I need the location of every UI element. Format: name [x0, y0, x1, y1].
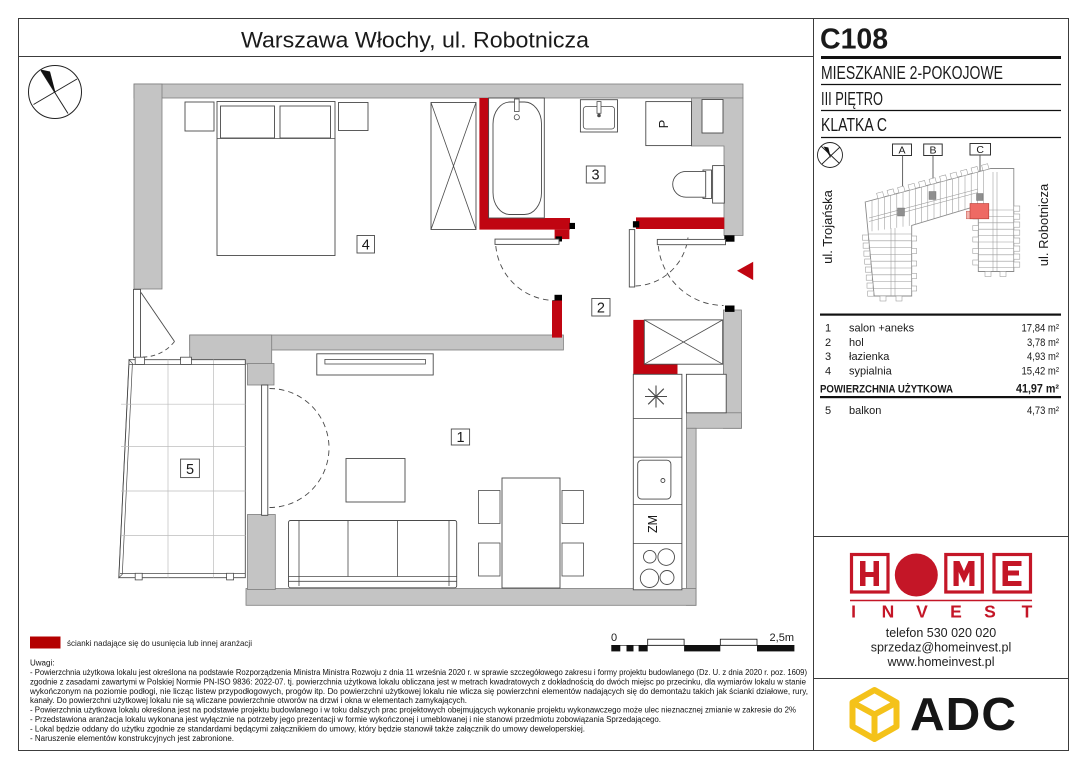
svg-text:15,42 m²: 15,42 m² [1022, 366, 1060, 378]
svg-text:4,93 m²: 4,93 m² [1027, 351, 1059, 363]
svg-text:ADC: ADC [910, 688, 1017, 740]
svg-text:balkon: balkon [849, 405, 881, 417]
svg-text:4: 4 [362, 238, 370, 254]
svg-text:KLATKA C: KLATKA C [821, 115, 887, 135]
svg-text:hol: hol [849, 337, 864, 349]
svg-text:A: A [898, 145, 905, 157]
svg-text:- Lokal będzie oddany do użytk: - Lokal będzie oddany do użytku zgodnie … [30, 724, 585, 733]
svg-text:E: E [950, 602, 962, 622]
svg-text:C108: C108 [820, 24, 888, 56]
svg-text:- Przedstawiona aranżacja loka: - Przedstawiona aranżacja lokalu wykonan… [30, 715, 661, 724]
svg-text:ul. Robotnicza: ul. Robotnicza [1036, 183, 1051, 266]
svg-text:C: C [976, 144, 984, 156]
svg-text:sprzedaz@homeinvest.pl: sprzedaz@homeinvest.pl [871, 641, 1012, 655]
svg-text:salon +aneks: salon +aneks [849, 323, 915, 335]
svg-text:1: 1 [456, 430, 464, 446]
svg-text:V: V [916, 602, 928, 622]
svg-text:ZM: ZM [646, 515, 660, 533]
svg-text:telefon 530 020 020: telefon 530 020 020 [886, 626, 997, 640]
svg-text:Warszawa Włochy, ul. Robotnicz: Warszawa Włochy, ul. Robotnicza [241, 28, 590, 53]
svg-text:łazienka: łazienka [849, 351, 890, 363]
svg-text:41,97 m²: 41,97 m² [1016, 384, 1059, 396]
svg-text:III PIĘTRO: III PIĘTRO [821, 89, 883, 109]
svg-text:sypialnia: sypialnia [849, 366, 893, 378]
svg-text:S: S [984, 602, 996, 622]
svg-text:17,84 m²: 17,84 m² [1022, 323, 1060, 335]
svg-text:MIESZKANIE 2-POKOJOWE: MIESZKANIE 2-POKOJOWE [821, 63, 1003, 83]
svg-text:T: T [1022, 602, 1033, 622]
svg-text:- Naruszenie elementów konstru: - Naruszenie elementów konstrukcyjnych j… [30, 734, 234, 743]
svg-text:2: 2 [825, 337, 831, 349]
svg-text:- Powierzchnia użytkowa lokalu: - Powierzchnia użytkowa lokalu jest okre… [30, 668, 807, 677]
svg-text:www.homeinvest.pl: www.homeinvest.pl [887, 655, 995, 669]
svg-text:kanały. Do powierzchni użytkow: kanały. Do powierzchni użytkowej lokalu … [30, 696, 467, 705]
svg-text:B: B [929, 145, 936, 157]
svg-text:POWIERZCHNIA UŻYTKOWA: POWIERZCHNIA UŻYTKOWA [820, 383, 953, 396]
svg-text:P: P [656, 120, 671, 129]
svg-text:3: 3 [592, 168, 600, 184]
svg-text:4,73 m²: 4,73 m² [1027, 405, 1059, 417]
svg-text:3,78 m²: 3,78 m² [1027, 337, 1059, 349]
svg-text:N: N [882, 602, 895, 622]
svg-text:2: 2 [597, 301, 605, 317]
svg-text:ścianki nadające się do usunię: ścianki nadające się do usunięcia lub in… [67, 638, 252, 648]
svg-text:wykończonym na poziomie podłog: wykończonym na poziomie podłogi, nie lic… [29, 687, 808, 696]
svg-text:- Powierzchnia użytkowa lokalu: - Powierzchnia użytkowa lokalu określona… [30, 706, 796, 715]
svg-text:ul. Trojańska: ul. Trojańska [820, 189, 835, 263]
svg-text:5: 5 [825, 405, 831, 417]
svg-text:zgodnie z zasadami zawartymi w: zgodnie z zasadami zawartymi w Polskiej … [30, 677, 807, 686]
svg-text:Uwagi:: Uwagi: [30, 659, 54, 668]
svg-text:0: 0 [611, 632, 617, 644]
svg-text:I: I [851, 602, 856, 622]
svg-text:3: 3 [825, 351, 831, 363]
svg-text:1: 1 [825, 323, 831, 335]
svg-text:4: 4 [825, 366, 831, 378]
svg-text:5: 5 [186, 462, 194, 478]
svg-text:2,5m: 2,5m [770, 632, 794, 644]
